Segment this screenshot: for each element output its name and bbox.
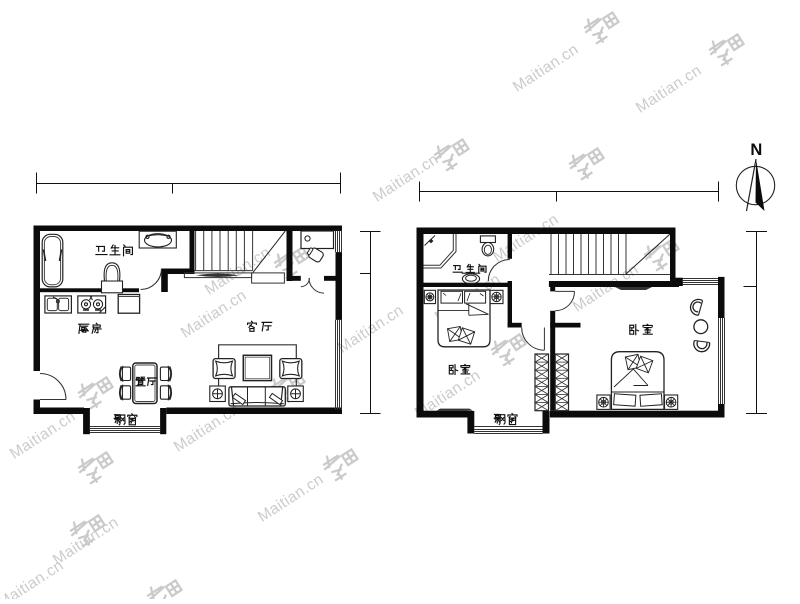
svg-text:N: N [750,141,762,159]
